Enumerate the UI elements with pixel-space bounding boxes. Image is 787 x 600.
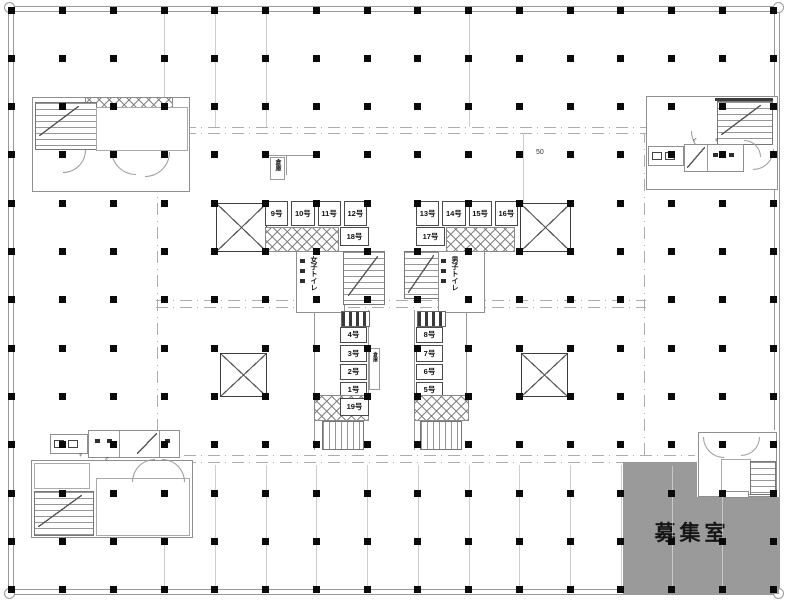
column: [262, 200, 269, 207]
toilet-fixture: [300, 269, 305, 273]
door-arc: [63, 150, 86, 173]
column: [161, 586, 168, 593]
column: [59, 103, 66, 110]
column: [465, 248, 472, 255]
column: [313, 103, 320, 110]
column: [617, 248, 624, 255]
room-stack-lower-right: 8号 7号 6号 5号: [416, 327, 443, 398]
room: 4号: [340, 327, 367, 343]
corner-stairwell-top-right: [646, 96, 778, 190]
sink-fixture: [652, 152, 662, 160]
column: [211, 393, 218, 400]
column: [414, 103, 421, 110]
corridor-line: [156, 307, 646, 308]
room: 14号: [442, 201, 465, 226]
column: [567, 296, 574, 303]
column: [516, 151, 523, 158]
column: [211, 538, 218, 545]
column: [719, 586, 726, 593]
room-stack-lower-left: 4号 3号 2号 1号: [340, 327, 367, 398]
column: [313, 248, 320, 255]
column: [161, 538, 168, 545]
column: [313, 441, 320, 448]
room-label: 7号: [424, 350, 436, 358]
column: [567, 7, 574, 14]
storage-box: 倉庫: [369, 348, 380, 390]
column: [465, 441, 472, 448]
column: [313, 538, 320, 545]
corridor-line: [644, 133, 645, 455]
column: [110, 151, 117, 158]
column: [668, 248, 675, 255]
column: [262, 345, 269, 352]
room: 17号: [416, 227, 445, 246]
column: [364, 7, 371, 14]
column: [465, 7, 472, 14]
room-label: 18号: [347, 233, 363, 241]
column: [313, 345, 320, 352]
elevator-hall-hatch: [265, 227, 339, 252]
column: [8, 393, 15, 400]
column: [8, 538, 15, 545]
column: [211, 490, 218, 497]
column: [414, 55, 421, 62]
stall-hatch: [687, 147, 705, 168]
column: [110, 393, 117, 400]
column: [770, 151, 777, 158]
column: [262, 586, 269, 593]
column: [617, 55, 624, 62]
room: 6号: [416, 364, 443, 380]
column: [262, 393, 269, 400]
machine-room: [96, 107, 188, 151]
column: [567, 490, 574, 497]
column: [516, 586, 523, 593]
column: [770, 538, 777, 545]
column: [211, 248, 218, 255]
column: [211, 200, 218, 207]
room-label: 2号: [348, 368, 360, 376]
partition-line: [215, 465, 216, 588]
column: [770, 55, 777, 62]
column: [313, 151, 320, 158]
column: [668, 586, 675, 593]
floor-plan: 50 募集室 9号 10号 11号 12号 18号 女子トイレ 倉庫 13号 1…: [0, 0, 787, 600]
partition-line: [672, 466, 673, 590]
room: 19号: [340, 398, 369, 416]
partition-line: [418, 465, 419, 588]
column: [110, 441, 117, 448]
storage-label: 倉庫: [372, 352, 377, 362]
column: [617, 490, 624, 497]
column: [110, 103, 117, 110]
stall-divider: [119, 431, 120, 457]
column: [719, 151, 726, 158]
column: [465, 345, 472, 352]
column: [313, 200, 320, 207]
room-label: 10号: [295, 210, 311, 218]
column: [8, 296, 15, 303]
column: [161, 345, 168, 352]
male-symbol: ♂: [692, 137, 697, 144]
corner-stairwell-bottom-left: [31, 460, 193, 538]
partition-line: [266, 465, 267, 588]
column: [211, 441, 218, 448]
kitchenette-counter: [648, 146, 684, 166]
column: [516, 490, 523, 497]
stall-divider: [707, 145, 708, 171]
column: [364, 103, 371, 110]
stair-arrow: [348, 256, 378, 296]
column: [59, 7, 66, 14]
column: [719, 441, 726, 448]
machine-room: [96, 478, 190, 536]
column: [414, 441, 421, 448]
column: [414, 248, 421, 255]
column: [8, 248, 15, 255]
column: [617, 538, 624, 545]
column: [313, 586, 320, 593]
column: [465, 103, 472, 110]
column: [465, 296, 472, 303]
column: [668, 393, 675, 400]
room: 16号: [495, 201, 518, 226]
column: [364, 441, 371, 448]
toilet-fixture: [441, 259, 446, 263]
column: [364, 538, 371, 545]
closet: [34, 463, 90, 489]
column: [59, 248, 66, 255]
room: 18号: [340, 227, 369, 246]
room-label: 13号: [420, 210, 436, 218]
column: [59, 55, 66, 62]
column: [364, 345, 371, 352]
partition-line: [469, 465, 470, 588]
wall: [286, 155, 287, 175]
elevator-shaft: [220, 353, 267, 397]
column: [110, 345, 117, 352]
column: [161, 490, 168, 497]
column: [770, 248, 777, 255]
column: [516, 345, 523, 352]
column: [770, 103, 777, 110]
column: [161, 393, 168, 400]
shaft-label: 倉庫: [274, 159, 280, 171]
column: [59, 490, 66, 497]
column: [668, 296, 675, 303]
room: 10号: [291, 201, 314, 226]
column: [719, 55, 726, 62]
column: [617, 586, 624, 593]
wall: [466, 310, 467, 395]
column: [59, 586, 66, 593]
column: [668, 103, 675, 110]
column: [313, 296, 320, 303]
room-label: 16号: [498, 210, 514, 218]
column: [414, 538, 421, 545]
column: [59, 200, 66, 207]
toilet-fixture: [713, 153, 718, 157]
elevator-shaft: [520, 203, 571, 252]
column: [465, 393, 472, 400]
column: [465, 490, 472, 497]
room-label: 15号: [472, 210, 488, 218]
column: [516, 200, 523, 207]
column: [414, 393, 421, 400]
column: [668, 7, 675, 14]
toilet-stalls: [684, 144, 744, 172]
column: [161, 151, 168, 158]
toilet-fixture: [300, 259, 305, 263]
column: [567, 151, 574, 158]
column: [516, 7, 523, 14]
column: [516, 103, 523, 110]
column: [59, 393, 66, 400]
toilet-fixture: [441, 269, 446, 273]
male-symbol: ♂: [104, 456, 109, 463]
column: [770, 490, 777, 497]
duct-box: [417, 311, 446, 327]
column: [313, 393, 320, 400]
room-label: 6号: [424, 368, 436, 376]
column: [262, 248, 269, 255]
column: [567, 200, 574, 207]
column: [719, 393, 726, 400]
column: [161, 296, 168, 303]
column: [59, 151, 66, 158]
column: [414, 586, 421, 593]
corner-stairwell-bottom-right: [698, 432, 777, 497]
column: [414, 345, 421, 352]
column: [770, 7, 777, 14]
column: [364, 296, 371, 303]
column: [110, 586, 117, 593]
column: [211, 55, 218, 62]
column: [414, 7, 421, 14]
column: [414, 490, 421, 497]
bench: [725, 491, 749, 498]
column: [110, 248, 117, 255]
column: [262, 103, 269, 110]
column: [770, 393, 777, 400]
toilet-fixture: [441, 279, 446, 283]
wall: [314, 310, 315, 450]
column: [59, 538, 66, 545]
elevator-hall-hatch: [446, 227, 515, 252]
column: [770, 345, 777, 352]
column: [211, 103, 218, 110]
column: [516, 296, 523, 303]
column: [364, 55, 371, 62]
column: [516, 538, 523, 545]
column: [617, 103, 624, 110]
column: [313, 7, 320, 14]
room: 8号: [416, 327, 443, 343]
column: [414, 200, 421, 207]
door-arc: [162, 459, 185, 482]
column: [567, 248, 574, 255]
column: [414, 296, 421, 303]
column: [59, 345, 66, 352]
column: [8, 586, 15, 593]
column: [262, 7, 269, 14]
column: [8, 103, 15, 110]
wall: [414, 310, 415, 450]
column: [161, 7, 168, 14]
column: [110, 296, 117, 303]
column: [8, 441, 15, 448]
column: [211, 7, 218, 14]
column: [262, 490, 269, 497]
column: [8, 345, 15, 352]
room-label: 9号: [271, 210, 283, 218]
core-stairs: [322, 421, 364, 450]
column: [668, 538, 675, 545]
column: [617, 441, 624, 448]
column: [516, 55, 523, 62]
door-arc: [741, 437, 760, 456]
mens-toilet-label: 男子トイレ: [451, 256, 458, 291]
column: [262, 538, 269, 545]
column: [617, 345, 624, 352]
column: [668, 490, 675, 497]
column: [668, 200, 675, 207]
column: [719, 345, 726, 352]
column: [668, 441, 675, 448]
toilet-fixture: [300, 279, 305, 283]
column: [567, 393, 574, 400]
column: [110, 7, 117, 14]
room-label: 11号: [321, 210, 336, 218]
stair-arrow: [38, 495, 82, 527]
column: [719, 248, 726, 255]
column: [313, 55, 320, 62]
column: [161, 441, 168, 448]
room-label: 12号: [347, 210, 363, 218]
column: [770, 441, 777, 448]
column: [668, 345, 675, 352]
column: [770, 296, 777, 303]
column: [8, 490, 15, 497]
column: [567, 586, 574, 593]
column: [59, 441, 66, 448]
column: [59, 296, 66, 303]
elevator-hall-hatch: [414, 395, 469, 421]
column: [262, 151, 269, 158]
column: [262, 441, 269, 448]
column: [465, 586, 472, 593]
mens-toilet: 男子トイレ: [438, 251, 485, 313]
column: [719, 7, 726, 14]
female-symbol: ♀: [78, 452, 83, 459]
column: [8, 55, 15, 62]
column: [567, 538, 574, 545]
room-label: 14号: [446, 210, 462, 218]
partition-line: [316, 465, 317, 588]
column: [668, 151, 675, 158]
room-label: 8号: [424, 331, 436, 339]
column: [8, 200, 15, 207]
column: [668, 55, 675, 62]
column: [110, 200, 117, 207]
partition-line: [621, 465, 622, 588]
room: 11号: [318, 201, 341, 226]
toilet-fixture: [729, 153, 734, 157]
column: [364, 586, 371, 593]
room-label: 4号: [348, 331, 360, 339]
stair-arrow: [39, 106, 79, 136]
kitchenette-counter: [50, 434, 88, 454]
column: [262, 296, 269, 303]
dimension-label: 50: [536, 149, 544, 156]
partition-line: [367, 465, 368, 588]
column: [617, 151, 624, 158]
column: [465, 55, 472, 62]
toilet-fixture: [95, 439, 100, 443]
column: [719, 103, 726, 110]
corner-stairwell-top-left: [32, 97, 190, 192]
column: [211, 151, 218, 158]
duct-box: [341, 311, 370, 327]
room-label: 17号: [423, 233, 439, 241]
column: [364, 200, 371, 207]
column: [719, 490, 726, 497]
column: [465, 151, 472, 158]
column: [161, 200, 168, 207]
room-label: 1号: [348, 386, 360, 394]
column: [364, 490, 371, 497]
column: [617, 7, 624, 14]
column: [719, 296, 726, 303]
column: [262, 55, 269, 62]
partition-line: [523, 133, 524, 203]
partition-line: [570, 465, 571, 588]
elevator-shaft: [216, 203, 267, 252]
column: [161, 55, 168, 62]
column: [617, 393, 624, 400]
shaft-box: 倉庫: [270, 157, 285, 180]
column: [770, 586, 777, 593]
column: [364, 393, 371, 400]
column: [567, 441, 574, 448]
column: [516, 248, 523, 255]
column: [719, 538, 726, 545]
column: [414, 151, 421, 158]
column: [161, 103, 168, 110]
column: [465, 538, 472, 545]
column: [364, 248, 371, 255]
stair-arrow: [721, 105, 761, 135]
column: [211, 296, 218, 303]
room-label: 19号: [347, 403, 363, 411]
column: [8, 151, 15, 158]
partition-line: [519, 465, 520, 588]
column: [567, 55, 574, 62]
column: [8, 7, 15, 14]
column: [770, 200, 777, 207]
column: [465, 200, 472, 207]
column: [567, 103, 574, 110]
room-label: 3号: [348, 350, 360, 358]
column: [110, 538, 117, 545]
column: [211, 586, 218, 593]
door-arc: [132, 459, 155, 482]
column: [110, 55, 117, 62]
column: [567, 345, 574, 352]
column: [617, 200, 624, 207]
female-symbol: ♀: [714, 137, 719, 144]
room: 2号: [340, 364, 367, 380]
